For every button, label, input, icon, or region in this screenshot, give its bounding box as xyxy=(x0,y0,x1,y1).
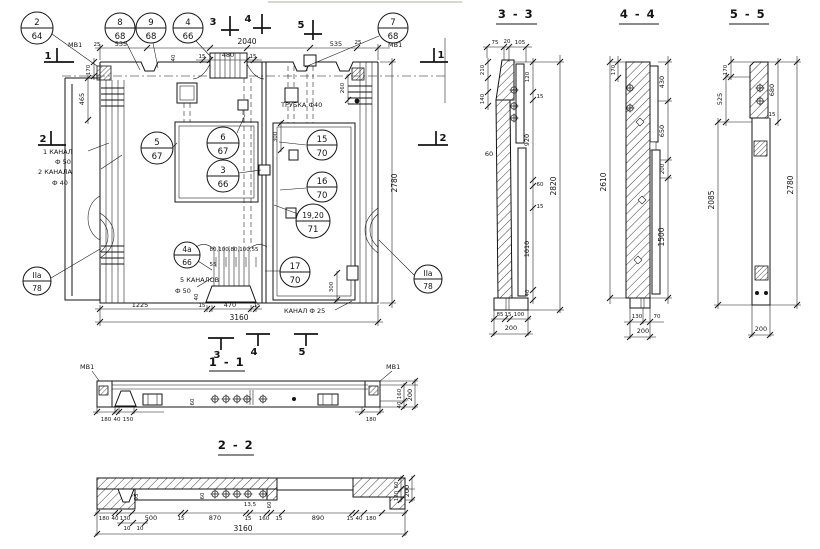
cut-mark-2-left: 2 xyxy=(40,134,47,145)
dim-label: 2085 xyxy=(707,190,716,209)
dim-label: 150 xyxy=(123,417,134,423)
dim-label: 85 xyxy=(497,312,504,318)
tube-note: ТРУБКА Ф40 xyxy=(280,101,322,109)
section-title: 4 - 4 xyxy=(620,7,656,21)
dim-label: 15 xyxy=(276,516,283,522)
dim-label: 15 xyxy=(178,516,185,522)
balloon-top-number: 17 xyxy=(290,262,301,272)
balloon-top-number: 5 xyxy=(154,138,159,148)
dim-label: 180 xyxy=(101,417,112,423)
balloon-bottom-number: 78 xyxy=(423,282,433,291)
section-2-2: 2 - 2 95 60 13,5 60 180 40 130 500 15 87… xyxy=(94,438,415,537)
balloon-bottom-number: 66 xyxy=(183,32,194,42)
section-title: 2 - 2 xyxy=(218,438,254,452)
dim-label: 60 xyxy=(190,398,196,405)
mv1-label-left: МВ1 xyxy=(80,363,94,371)
balloon-top-number: 16 xyxy=(317,177,328,187)
dim-label: 25 xyxy=(355,40,362,46)
dim-label: 13,5 xyxy=(244,502,257,508)
channel-note: 2 КАНАЛА xyxy=(38,168,72,176)
cut-mark-5-bottom: 5 xyxy=(299,347,306,358)
dim-label: 20 xyxy=(504,39,511,45)
dim-label: 200 xyxy=(660,163,666,174)
balloon-bottom-number: 70 xyxy=(317,191,328,201)
dim-label: 525 xyxy=(716,93,724,105)
dim-label: 170 xyxy=(611,64,617,75)
channel-note: Ф 50 xyxy=(55,158,71,166)
dim-row-label: 80,100,80,100,55 xyxy=(210,247,259,253)
balloon-bottom-number: 78 xyxy=(32,284,42,293)
balloon-top-number: 19,20 xyxy=(302,211,324,220)
cut-mark-1-left: 1 xyxy=(45,51,52,62)
dim-label: 15 xyxy=(505,312,512,318)
dim-label: 3160 xyxy=(233,524,252,533)
dim-label: 60 xyxy=(537,182,544,188)
balloon-bottom-number: 68 xyxy=(115,32,126,42)
balloon-top-number: 8 xyxy=(117,18,122,28)
mv1-label-right: МВ1 xyxy=(388,41,402,49)
section-3-3: 3 - 3 75 20 105 210 140 60 120 15 920 60… xyxy=(480,7,564,337)
balloon-17-70: 1770 xyxy=(280,257,310,287)
dim-label: 160 xyxy=(397,388,403,399)
dim-label: 2040 xyxy=(237,37,256,46)
balloon-top-number: 7 xyxy=(390,18,395,28)
dim-label: 130 xyxy=(120,516,131,522)
dim-label: 40 xyxy=(112,516,119,522)
balloon-5-67: 567 xyxy=(141,132,173,164)
balloon-bottom-number: 66 xyxy=(218,180,229,190)
dim-label: 130 xyxy=(632,314,643,320)
dim-label: 95 xyxy=(134,493,140,500)
dim-label: 1500 xyxy=(657,227,666,246)
balloon-bottom-number: 70 xyxy=(290,276,301,286)
dim-label: 15 xyxy=(769,112,776,118)
balloon-bottom-number: 66 xyxy=(182,258,192,267)
section-title: 3 - 3 xyxy=(498,7,534,21)
dim-label: 15 xyxy=(245,516,252,522)
dim-label: 200 xyxy=(755,325,767,333)
dim-label: 15 xyxy=(347,516,354,522)
opening-left xyxy=(175,122,258,202)
dim-label: 75 xyxy=(492,40,499,46)
dim-label: 480 xyxy=(222,51,234,59)
dim-label: 2610 xyxy=(599,172,608,191)
balloon-9-68: 968 xyxy=(136,13,166,43)
dim-label: 180 xyxy=(366,417,377,423)
balloon-top-number: 15 xyxy=(317,135,328,145)
dim-label: 70 xyxy=(654,314,661,320)
dim-label: 465 xyxy=(78,93,86,105)
channel-note: Ф 50 xyxy=(175,287,191,295)
dim-label: 140 xyxy=(480,93,486,104)
dim-label: 2820 xyxy=(549,176,558,195)
dim-label: 170 xyxy=(86,64,92,75)
dim-label: 3160 xyxy=(229,313,248,322)
dim-label: 105 xyxy=(515,40,526,46)
dim-label: 200 xyxy=(505,324,517,332)
dim-label: 300 xyxy=(329,281,335,292)
dim-label: 40 xyxy=(194,293,200,300)
dim-label: 1010 xyxy=(523,241,531,258)
balloon-bottom-number: 68 xyxy=(388,32,399,42)
dim-label: 470 xyxy=(224,301,236,309)
plan-openings xyxy=(175,122,355,300)
dim-label: 650 xyxy=(658,125,666,137)
balloon-top-number: 4 xyxy=(185,18,190,28)
dim-label: 100 xyxy=(514,312,525,318)
balloon-top-number: 6 xyxy=(220,133,225,143)
channel-note: Ф 40 xyxy=(52,179,68,187)
dim-label: 10 xyxy=(137,526,144,532)
balloon-bottom-number: 67 xyxy=(152,152,163,162)
balloon-top-number: IIа xyxy=(423,269,432,278)
dim-label: 60 xyxy=(200,492,206,499)
engineering-drawing-canvas: МВ1 25 535 2040 40 15 480 15 535 25 МВ1 … xyxy=(0,0,820,544)
balloon-bottom-number: 70 xyxy=(317,149,328,159)
balloon-15-70: 1570 xyxy=(307,130,337,160)
balloon-top-number: 3 xyxy=(220,166,225,176)
dim-label: 40 xyxy=(525,289,531,296)
plan-bottom-ribbed-block xyxy=(196,244,267,302)
dim-label: 200 xyxy=(403,485,411,497)
balloon-bottom-number: 64 xyxy=(32,32,43,42)
channel-note: 5 КАНАЛОВ xyxy=(180,276,219,284)
balloon-IIa-78-left: IIа78 xyxy=(23,267,51,295)
balloon-16-70: 1670 xyxy=(307,172,337,202)
balloon-8-68: 868 xyxy=(105,13,135,43)
balloon-4a-66: 4а66 xyxy=(174,242,200,268)
dim-label: 160 xyxy=(259,516,270,522)
dim-label: 920 xyxy=(523,134,531,146)
dim-label: 10 xyxy=(124,526,131,532)
dim-label: 535 xyxy=(330,40,342,48)
panel-plan-view: МВ1 25 535 2040 40 15 480 15 535 25 МВ1 … xyxy=(21,12,448,361)
balloon-bottom-number: 68 xyxy=(146,32,157,42)
section-1-1: 1 - 1 МВ1 МВ1 60 180 40 150 180 160 40 2 xyxy=(80,355,418,423)
section-5-5: 5 - 5 170 525 2085 680 15 2780 200 xyxy=(707,7,801,338)
dim-label: 15 xyxy=(250,54,257,60)
dim-label: 200 xyxy=(637,327,649,335)
dim-label: 60 xyxy=(394,481,400,488)
dim-label: 2780 xyxy=(390,173,399,192)
cut-mark-4-top: 4 xyxy=(245,14,252,25)
dim-label: 180 xyxy=(366,516,377,522)
balloon-7-68: 768 xyxy=(378,13,408,43)
tube-point xyxy=(355,99,360,104)
cut-mark-3-top: 3 xyxy=(210,17,217,28)
dim-label: 15 xyxy=(537,204,544,210)
dim-label: 15 xyxy=(199,54,206,60)
dim-label: 2780 xyxy=(786,175,795,194)
cut-mark-2-right: 2 xyxy=(440,133,447,144)
balloon-top-number: 4а xyxy=(182,245,191,254)
balloon-top-number: 2 xyxy=(34,18,39,28)
dim-label: 40 xyxy=(397,401,403,408)
dim-label: 25 xyxy=(94,42,101,48)
balloon-top-number: 9 xyxy=(148,18,153,28)
dim-label: 120 xyxy=(394,490,400,501)
dim-label: 15 xyxy=(199,303,206,309)
dim-label: 870 xyxy=(209,514,221,522)
dim-label: 1225 xyxy=(132,301,149,309)
cut-mark-4-bottom: 4 xyxy=(251,347,258,358)
channel-note: 1 КАНАЛ xyxy=(43,148,73,156)
balloon-2-64: 264 xyxy=(21,12,53,44)
balloon-4-66: 466 xyxy=(173,13,203,43)
dim-label: 300 xyxy=(273,131,279,142)
dim-label: 15 xyxy=(537,94,544,100)
dim-label: 430 xyxy=(658,76,666,88)
dim-label: 55 xyxy=(210,262,217,268)
mv1-plate-right xyxy=(352,68,364,80)
mv1-label-right: МВ1 xyxy=(386,363,400,371)
mv1-plate-left xyxy=(97,66,111,80)
channel-note: КАНАЛ Ф 25 xyxy=(284,307,325,315)
balloon-bottom-number: 67 xyxy=(218,147,229,157)
dim-label: 60 xyxy=(267,501,273,508)
balloon-top-number: IIа xyxy=(32,271,41,280)
balloon-bottom-number: 71 xyxy=(308,225,319,235)
dim-label: 120 xyxy=(525,71,531,82)
dim-label: 200 xyxy=(406,389,414,401)
section-title: 1 - 1 xyxy=(209,355,245,369)
cut-mark-5-top: 5 xyxy=(298,20,305,31)
dim-label: 890 xyxy=(312,514,324,522)
dim-label: 210 xyxy=(480,64,486,75)
dim-label: 260 xyxy=(340,82,346,93)
cut-mark-1-right: 1 xyxy=(438,50,445,61)
mv1-label-left: МВ1 xyxy=(68,41,82,49)
dim-label: 40 xyxy=(171,54,177,61)
dim-label: 180 xyxy=(99,516,110,522)
section-4-4: 4 - 4 170 2610 430 650 200 1500 130 70 2… xyxy=(599,7,672,340)
dim-label: 680 xyxy=(768,84,776,96)
balloon-IIa-78-right: IIа78 xyxy=(414,265,442,293)
dim-label: 40 xyxy=(114,417,121,423)
dim-label: 40 xyxy=(356,516,363,522)
dim-label: 60 xyxy=(485,150,493,158)
dim-label: 15 xyxy=(254,303,261,309)
section-title: 5 - 5 xyxy=(730,7,766,21)
